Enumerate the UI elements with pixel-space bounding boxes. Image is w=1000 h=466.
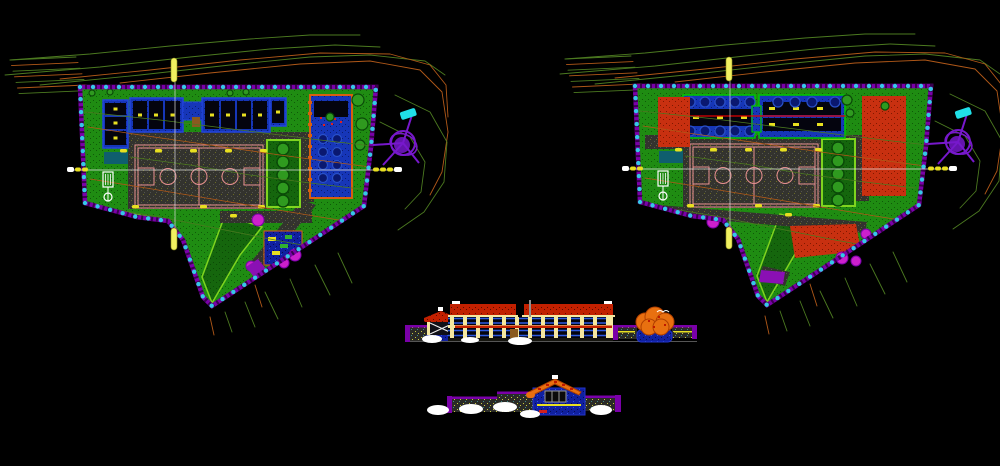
- cad-drawing-sheet: [0, 0, 1000, 466]
- boundary-dot: [178, 234, 182, 238]
- boundary-dot: [906, 84, 910, 88]
- boundary-dot: [634, 122, 638, 126]
- axis-tick-marker: [637, 167, 643, 171]
- contour-line: [565, 34, 915, 59]
- play-equipment: [285, 235, 292, 239]
- column-circle: [715, 97, 725, 107]
- round-table: [319, 161, 328, 170]
- boundary-dot: [370, 127, 374, 131]
- boundary-dot: [724, 84, 728, 88]
- boundary-dot: [854, 84, 858, 88]
- tree-canopy: [653, 319, 669, 335]
- boundary-dot: [329, 226, 333, 230]
- boundary-wall: [672, 325, 697, 339]
- boundary-dot: [80, 136, 84, 140]
- bush-cloud: [422, 335, 442, 343]
- roof-tile-mark: [562, 384, 565, 386]
- boundary-dot: [789, 84, 793, 88]
- contour-line: [820, 291, 833, 318]
- comb-tick: [308, 101, 312, 104]
- contour-line: [380, 122, 425, 209]
- boundary-dot: [351, 85, 355, 89]
- furniture-mark: [769, 107, 775, 110]
- furniture-mark: [114, 137, 118, 140]
- comb-tick: [308, 134, 312, 137]
- furniture-mark: [226, 114, 230, 117]
- column: [580, 317, 584, 325]
- wall-pier: [405, 325, 410, 342]
- tree: [832, 155, 844, 167]
- comb-tick: [308, 123, 312, 126]
- boundary-dot: [714, 217, 718, 221]
- boundary-dot: [108, 208, 112, 212]
- boundary-dot: [776, 84, 780, 88]
- boundary-dot: [841, 84, 845, 88]
- boundary-dot: [275, 261, 279, 265]
- contour-line: [870, 264, 885, 294]
- terrace-line: [573, 84, 642, 87]
- bench: [120, 149, 127, 153]
- boundary-dot: [711, 84, 715, 88]
- furniture-mark: [171, 114, 175, 117]
- boundary-dot: [264, 268, 268, 272]
- contour-line: [935, 121, 980, 208]
- boundary-dot: [201, 294, 205, 298]
- axis-end-marker: [726, 227, 732, 249]
- furniture-mark: [817, 107, 823, 110]
- boundary-dot: [95, 204, 99, 208]
- tree: [277, 182, 289, 194]
- boundary-dot: [880, 84, 884, 88]
- site-plan-b: [560, 34, 1000, 334]
- boundary-dot: [363, 191, 367, 195]
- terrace-line: [567, 62, 634, 65]
- axis-end-marker: [67, 167, 74, 172]
- reserved-area: [862, 96, 906, 196]
- tree: [356, 118, 368, 130]
- boundary-dot: [78, 97, 82, 101]
- contour-line: [5, 45, 380, 75]
- wall-pier: [615, 395, 621, 412]
- tree: [881, 102, 889, 110]
- column-circle: [830, 97, 840, 107]
- wall-stripe: [674, 331, 695, 333]
- boundary-dot: [638, 200, 642, 204]
- axis-tick-marker: [82, 168, 88, 172]
- north-marker: [399, 108, 417, 121]
- column-circle: [700, 126, 710, 136]
- tree: [832, 142, 844, 154]
- axis-end-marker: [171, 228, 177, 250]
- contour-line: [210, 317, 214, 335]
- flowering-tree: [252, 214, 264, 226]
- eave-line: [448, 315, 518, 317]
- tree: [352, 94, 364, 106]
- furniture-mark: [276, 111, 280, 114]
- boundary-dot: [756, 293, 760, 297]
- contour-line: [245, 302, 255, 327]
- bush-cloud: [520, 410, 540, 418]
- shrub-bed: [104, 152, 128, 164]
- bush-cloud: [427, 405, 449, 415]
- wall-coping: [447, 397, 499, 400]
- tree: [846, 109, 854, 117]
- boundary-dot: [637, 187, 641, 191]
- boundary-dot: [117, 85, 121, 89]
- axis-tick-marker: [928, 167, 934, 171]
- boundary-dot: [247, 85, 251, 89]
- bench: [675, 148, 682, 152]
- classroom-building: [270, 98, 286, 126]
- boundary-dot: [650, 203, 654, 207]
- boundary-dot: [374, 88, 378, 92]
- boundary-dot: [146, 216, 150, 220]
- boundary-dot: [79, 110, 83, 114]
- boundary-dot: [921, 164, 925, 168]
- site-ground: [80, 87, 376, 306]
- boundary-dot: [851, 246, 855, 250]
- north-marker: [954, 107, 972, 120]
- boundary-dot: [919, 84, 923, 88]
- contour-line: [10, 35, 360, 60]
- boundary-dot: [916, 203, 920, 207]
- axis-tick-marker: [630, 167, 636, 171]
- round-table: [319, 135, 328, 144]
- boundary-dot: [368, 153, 372, 157]
- reserved-area: [658, 97, 690, 147]
- boundary-dot: [260, 85, 264, 89]
- wall-pier: [692, 325, 697, 339]
- boundary-dot: [918, 190, 922, 194]
- boundary-dot: [927, 100, 931, 104]
- boundary-dot: [208, 85, 212, 89]
- boundary-dot: [633, 84, 637, 88]
- building-connector: [752, 106, 761, 132]
- shrub-accent: [526, 392, 535, 398]
- column-circle: [730, 126, 740, 136]
- boundary-dot: [209, 303, 213, 307]
- boundary-dot: [83, 201, 87, 205]
- boundary-dot: [361, 204, 365, 208]
- boundary-dot: [828, 84, 832, 88]
- column: [541, 328, 545, 338]
- column-circle: [700, 97, 710, 107]
- boundary-dot: [338, 85, 342, 89]
- axis-tick-marker: [373, 168, 379, 172]
- tree: [227, 90, 233, 96]
- site-plan-a: [5, 35, 448, 335]
- axis-tick-marker: [75, 168, 81, 172]
- comb-tick: [308, 112, 312, 115]
- column: [476, 317, 480, 325]
- round-table: [333, 148, 342, 157]
- column: [567, 328, 571, 338]
- tiled-roof: [524, 304, 613, 315]
- boundary-dot: [130, 85, 134, 89]
- canopy-mark: [658, 316, 660, 318]
- flagpole-marker: [171, 58, 177, 82]
- column: [554, 328, 558, 338]
- boundary-dot: [143, 85, 147, 89]
- boundary-dot: [830, 260, 834, 264]
- furniture-mark: [114, 122, 118, 125]
- column: [528, 317, 532, 325]
- boundary-dot: [786, 289, 790, 293]
- equipment-mark: [323, 124, 325, 126]
- eave-line: [522, 315, 615, 317]
- tree: [277, 156, 289, 168]
- boundary-dot: [926, 113, 930, 117]
- mast: [529, 300, 531, 317]
- contour-line: [255, 285, 262, 307]
- wind-rose: [928, 107, 975, 164]
- tree: [326, 113, 334, 121]
- boundary-dot: [234, 85, 238, 89]
- boundary-dot: [351, 211, 355, 215]
- axis-end-marker: [949, 166, 957, 171]
- boundary-dot: [82, 175, 86, 179]
- column: [554, 317, 558, 325]
- boundary-dot: [893, 84, 897, 88]
- axis-end-marker: [394, 167, 402, 172]
- furniture-mark: [138, 114, 142, 117]
- furniture-mark: [114, 108, 118, 111]
- roof-finial: [552, 375, 558, 379]
- wind-rose: [373, 108, 420, 165]
- tree: [277, 143, 289, 155]
- boundary-dot: [733, 233, 737, 237]
- boundary-dot: [81, 149, 85, 153]
- boundary-dot: [675, 210, 679, 214]
- boundary-dot: [775, 296, 779, 300]
- boundary-dot: [78, 85, 82, 89]
- boundary-dot: [895, 217, 899, 221]
- tree: [243, 89, 249, 95]
- boundary-dot: [183, 245, 187, 249]
- boundary-dot: [296, 247, 300, 251]
- boundary-dot: [366, 165, 370, 169]
- boundary-dot: [636, 161, 640, 165]
- round-table: [319, 174, 328, 183]
- bench: [755, 204, 762, 208]
- boundary-dot: [738, 244, 742, 248]
- boundary-dot: [91, 85, 95, 89]
- bush-cloud: [508, 337, 532, 345]
- boundary-dot: [646, 84, 650, 88]
- bench: [132, 205, 139, 209]
- bush-cloud: [493, 402, 517, 412]
- boundary-dot: [299, 85, 303, 89]
- cad-canvas: [0, 0, 1000, 466]
- front-elevation: [405, 300, 697, 345]
- tree: [832, 181, 844, 193]
- boundary-dot: [286, 254, 290, 258]
- column: [476, 328, 480, 338]
- school-building-elevation: [448, 300, 615, 341]
- boundary-dot: [312, 85, 316, 89]
- roof-flag: [604, 301, 612, 304]
- boundary-dot: [688, 213, 692, 217]
- tree: [89, 90, 95, 96]
- boundary-dot: [797, 282, 801, 286]
- shrub-bed: [659, 151, 683, 163]
- furniture-mark: [154, 114, 158, 117]
- contour-line: [765, 316, 769, 334]
- roof-tile-mark: [546, 384, 549, 386]
- bench: [710, 148, 717, 152]
- round-table: [333, 174, 342, 183]
- column: [528, 328, 532, 338]
- boundary-dot: [750, 84, 754, 88]
- contour-line: [560, 44, 935, 74]
- column-circle: [715, 126, 725, 136]
- axis-end-marker: [622, 166, 629, 171]
- column: [541, 317, 545, 325]
- bench: [230, 214, 237, 218]
- boundary-dot: [221, 85, 225, 89]
- courtyard-tree-elevation: [636, 307, 674, 342]
- boundary-dot: [231, 290, 235, 294]
- roof-tile-mark: [554, 381, 557, 383]
- roof-flag: [452, 301, 460, 304]
- boundary-dot: [156, 85, 160, 89]
- boundary-dot: [81, 162, 85, 166]
- column: [580, 328, 584, 338]
- terrace-line: [18, 85, 87, 88]
- boundary-dot: [159, 218, 163, 222]
- column: [609, 317, 613, 325]
- column: [502, 328, 506, 338]
- furniture-mark: [242, 114, 246, 117]
- boundary-dot: [737, 84, 741, 88]
- bench: [225, 149, 232, 153]
- boundary-dot: [701, 215, 705, 219]
- contour-line: [265, 292, 278, 319]
- column: [593, 328, 597, 338]
- boundary-dot: [120, 211, 124, 215]
- boundary-dot: [808, 275, 812, 279]
- column: [489, 328, 493, 338]
- roof-tile-mark: [538, 388, 541, 390]
- boundary-dot: [253, 276, 257, 280]
- gate-opening: [545, 391, 566, 402]
- gatehouse-post: [427, 322, 430, 335]
- roof-finial: [438, 307, 443, 311]
- boundary-dot: [372, 101, 376, 105]
- comb-tick: [308, 178, 312, 181]
- play-equipment: [272, 251, 280, 255]
- column-circle: [773, 97, 783, 107]
- boundary-dot: [273, 85, 277, 89]
- classroom-building: [103, 100, 128, 148]
- boundary-dot: [747, 269, 751, 273]
- boundary-dot: [307, 240, 311, 244]
- boundary-dot: [369, 140, 373, 144]
- boundary-dot: [371, 114, 375, 118]
- tree-strip: [822, 139, 855, 206]
- boundary-dot: [743, 256, 747, 260]
- boundary-dot: [923, 152, 927, 156]
- comb-tick: [308, 167, 312, 170]
- wall-pier: [613, 325, 618, 340]
- contour-line: [290, 279, 302, 307]
- boundary-dot: [815, 84, 819, 88]
- boundary-dot: [635, 135, 639, 139]
- column: [609, 328, 613, 338]
- terrace-line: [15, 74, 83, 77]
- column: [450, 328, 454, 338]
- boundary-dot: [906, 210, 910, 214]
- boundary-dot: [242, 283, 246, 287]
- contour-line: [845, 278, 857, 306]
- column: [593, 317, 597, 325]
- contour-line: [338, 253, 352, 283]
- column: [502, 317, 506, 325]
- gate-section: [427, 375, 621, 418]
- site-gate: [759, 270, 785, 284]
- tree: [842, 95, 852, 105]
- boundary-dot: [318, 233, 322, 237]
- boundary-dot: [698, 84, 702, 88]
- bench: [155, 149, 162, 153]
- axis-tick-marker: [935, 167, 941, 171]
- bush-cloud: [459, 404, 483, 414]
- bench: [785, 213, 792, 217]
- play-equipment: [280, 244, 288, 248]
- cafeteria-building: [308, 95, 352, 198]
- boundary-dot: [220, 297, 224, 301]
- boundary-dot: [663, 207, 667, 211]
- door: [510, 329, 518, 338]
- boundary-dot: [659, 84, 663, 88]
- boundary-dot: [802, 84, 806, 88]
- tree-strip: [267, 140, 300, 207]
- bench: [200, 205, 207, 209]
- boundary-dot: [79, 123, 83, 127]
- canopy-mark: [664, 324, 666, 326]
- comb-tick: [308, 189, 312, 192]
- boundary-dot: [862, 239, 866, 243]
- boundary-dot: [763, 84, 767, 88]
- furniture-mark: [258, 114, 262, 117]
- boundary-dot: [724, 222, 728, 226]
- boundary-dot: [104, 85, 108, 89]
- boundary-dot: [192, 270, 196, 274]
- boundary-dot: [195, 85, 199, 89]
- bench: [687, 204, 694, 208]
- contour-line: [893, 252, 907, 282]
- boundary-dot: [929, 87, 933, 91]
- boundary-dot: [634, 109, 638, 113]
- terrace-line: [19, 91, 88, 94]
- boundary-dot: [133, 214, 137, 218]
- boundary-dot: [196, 282, 200, 286]
- equipment-mark: [320, 117, 322, 119]
- boundary-dot: [169, 85, 173, 89]
- column: [450, 317, 454, 325]
- roof-tile-mark: [570, 388, 573, 390]
- boundary-dot: [325, 85, 329, 89]
- flowering-tree: [851, 256, 861, 266]
- bench: [780, 148, 787, 152]
- bench: [190, 149, 197, 153]
- spandrel-band: [455, 326, 612, 329]
- boundary-dot: [925, 126, 929, 130]
- canopy-mark: [653, 326, 655, 328]
- boundary-dot: [819, 267, 823, 271]
- terrace-line: [12, 63, 79, 66]
- round-table: [319, 148, 328, 157]
